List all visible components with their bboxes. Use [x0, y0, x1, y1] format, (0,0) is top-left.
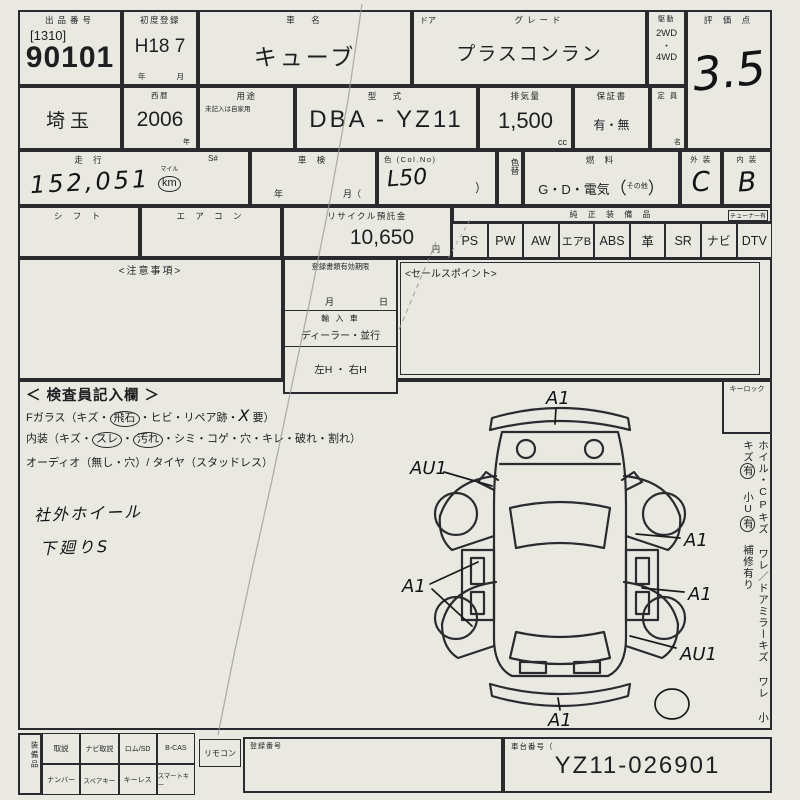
interior-grade-label: 内 装	[724, 152, 770, 165]
accessories-grid: 取説 ナビ取説 ロム/SD B-CAS ナンバー スペアキー キーレス スマート…	[42, 733, 195, 795]
drive-2wd: 2WD	[649, 28, 684, 39]
interior-pre: 内装（キズ・	[26, 433, 92, 445]
genuine-equipment-grid: PS PW AW エアB ABS 革 SR ナビ DTV	[452, 223, 772, 258]
accessory-number-plate: ナンバー	[42, 764, 80, 795]
mileage-unit: マイル km	[158, 164, 181, 192]
color-change-label: 色替	[510, 158, 520, 175]
western-year-cell: 西暦 2006 年	[122, 86, 198, 150]
recycle-deposit-value: 10,650	[284, 226, 450, 250]
interior-grade-cell: 内 装 B	[722, 150, 772, 206]
shaken-cell: 車 検 年 月（	[250, 150, 377, 206]
inspector-note-aftermarket-wheels: 社外ホイール	[34, 498, 143, 526]
annotation-right-front-door: A1	[683, 530, 708, 551]
sidebar-mirror-text: ドアミラーキズ ワレ	[757, 583, 769, 700]
sales-point-label: <セールスポイント>	[401, 263, 759, 280]
door-slot-right-front	[636, 558, 649, 584]
displacement-value: 1,500	[480, 108, 571, 134]
usage-cell: 用途 未記入は自家用	[198, 86, 295, 150]
registration-docs-box: 登録書類有効期限 月 日 輸 入 車 ディーラー・並行 左H ・ 右H	[283, 258, 398, 394]
docs-month-day-row: 月 日	[285, 272, 396, 311]
front-glass-post: 要）	[253, 412, 275, 424]
capacity-label: 定 員	[652, 88, 684, 101]
grade-value: プラスコンラン	[414, 39, 645, 66]
first-registration-label: 初度登録	[124, 12, 196, 26]
sidebar-repair-note: 補修有り	[742, 545, 754, 591]
car-name-label: 車 名	[200, 12, 410, 26]
annotation-right-rear-door: A1	[687, 584, 712, 605]
recycle-deposit-label: リサイクル預託金	[284, 208, 450, 222]
sidebar-small-dent-label: 小U	[742, 492, 754, 517]
warranty-label: 保証書	[575, 88, 648, 102]
keylock-label: キーロック	[724, 382, 770, 394]
docs-month-label: 月	[325, 295, 334, 308]
fuel-value-line: G・D・電気（その他）	[525, 174, 678, 199]
accessory-rom-sd: ロム/SD	[119, 733, 157, 764]
rear-bumper	[490, 684, 630, 706]
equipment-item-airbag: エアB	[559, 223, 595, 258]
shaken-year-label: 年	[274, 187, 283, 200]
recycle-deposit-cell: リサイクル預託金 10,650 円	[282, 206, 452, 258]
door-slot-right-rear	[636, 592, 649, 614]
annotation-left-doors: A1	[401, 576, 426, 597]
chassis-number-value: YZ11-026901	[505, 752, 770, 780]
sidebar-small-dent-mark: 有	[740, 516, 755, 532]
first-registration-unit-year: 年	[138, 71, 146, 82]
door-label: ドア	[420, 15, 436, 26]
color-label: 色 (Col.No)	[379, 152, 495, 165]
grade-label: グレード	[414, 12, 645, 26]
registration-docs-label: 登録書類有効期限	[285, 260, 396, 272]
equipment-item-dtv: DTV	[737, 223, 773, 258]
western-year-value: 2006	[124, 108, 196, 132]
headlight-right	[585, 440, 603, 458]
model-code-label: 型 式	[297, 88, 476, 102]
exterior-grade-cell: 外 装 C	[680, 150, 722, 206]
accessory-spare-key: スペアキー	[80, 764, 118, 795]
sidebar-wheel-cp-text: ホイル・CPキズ ワレ	[757, 440, 769, 571]
remote-label: リモコン	[204, 748, 236, 759]
recycle-deposit-unit: 円	[432, 244, 440, 255]
capacity-cell: 定 員 名	[650, 86, 686, 150]
registration-number-label: 登録番号	[245, 739, 501, 751]
accessories-row-1: 取説 ナビ取説 ロム/SD B-CAS	[42, 733, 195, 764]
sales-point-box: <セールスポイント>	[400, 262, 760, 375]
mile-unit-label: マイル	[158, 164, 181, 173]
shift-label: シ フ ト	[20, 208, 138, 222]
chassis-number-box: 車台番号（ YZ11-026901	[503, 737, 772, 793]
accessories-label: 装備品	[30, 741, 39, 770]
color-cell: 色 (Col.No) L50 ）	[377, 150, 497, 206]
windshield	[510, 502, 610, 548]
door-slot-left-rear	[471, 592, 484, 614]
auction-sheet-scan: { "palette": {"paper":"#e9e9e2","ink":"#…	[0, 0, 800, 800]
grade-cell: ドア グレード プラスコンラン	[412, 10, 647, 86]
docs-day-label: 日	[379, 295, 388, 308]
western-year-unit: 年	[183, 137, 190, 147]
equipment-item-pw: PW	[488, 223, 524, 258]
handwritten-circle-mark	[655, 689, 689, 719]
aircon-cell: エ ア コ ン	[140, 206, 282, 258]
western-year-label: 西暦	[124, 88, 196, 101]
displacement-unit: cc	[558, 137, 567, 147]
car-damage-diagram: A1 AU1 A1 A1 A1 AU1 A1	[398, 386, 722, 730]
usage-label: 用途	[200, 88, 293, 102]
leader-front	[555, 408, 556, 424]
accessory-bcas: B-CAS	[157, 733, 195, 764]
equipment-item-navi: ナビ	[701, 223, 737, 258]
first-registration-unit-month: 月	[177, 71, 185, 82]
mileage-value: 152,051	[29, 165, 151, 199]
fuel-value: G・D・電気	[538, 182, 610, 197]
interior-sep: ・	[122, 433, 133, 445]
model-code-cell: 型 式 DBA - YZ11	[295, 86, 478, 150]
tuner-note: チューナー有	[728, 210, 768, 221]
genuine-equipment-label: 純 正 装 備 品	[454, 208, 770, 220]
shift-cell: シ フ ト	[18, 206, 140, 258]
audio-tire-line: オーディオ（無し・穴）/ タイヤ（スタッドレス）	[26, 454, 273, 470]
mileage-cell: 走 行 S# 152,051 マイル km	[18, 150, 250, 206]
exterior-grade-value: C	[681, 165, 722, 199]
color-paren-close: ）	[475, 179, 487, 196]
handle-value: 左H ・ 右H	[285, 347, 396, 392]
accessory-navi-manual: ナビ取説	[80, 733, 118, 764]
remote-cell: リモコン	[199, 739, 241, 767]
chassis-number-label: 車台番号（	[505, 739, 770, 752]
lot-number-cell: 出品番号 [1310] 90101	[18, 10, 122, 86]
leader-rear	[558, 698, 560, 710]
first-registration-value: H18 7	[124, 36, 196, 58]
annotation-left-fender: AU1	[409, 458, 447, 479]
usage-note: 未記入は自家用	[200, 103, 293, 113]
color-change-cell: 色替	[497, 150, 523, 206]
region-cell: 埼玉	[18, 86, 122, 150]
equipment-item-ps: PS	[452, 223, 488, 258]
front-glass-mid: ・ヒビ・リペア跡・	[140, 412, 239, 424]
inspector-note-underbody: 下廻りS	[40, 533, 111, 559]
front-glass-circled-flying-stone: 飛石	[110, 411, 140, 427]
front-glass-line: Fガラス（キズ・飛石・ヒビ・リペア跡・X 要）	[26, 406, 275, 427]
drive-cell: 駆動 2WD ・ 4WD	[647, 10, 686, 86]
region-value: 埼玉	[20, 106, 120, 133]
car-name-value: キューブ	[200, 38, 410, 72]
displacement-label: 排気量	[480, 88, 571, 102]
sheet: 出品番号 [1310] 90101 初度登録 H18 7 年 月 車 名 キュー…	[0, 0, 800, 800]
front-bumper	[490, 408, 630, 430]
accessory-manual: 取説	[42, 733, 80, 764]
interior-condition-line: 内装（キズ・スレ・汚れ・シミ・コゲ・穴・キレ・破れ・割れ）	[26, 430, 361, 448]
sidebar-small-scratch-mark: 有	[740, 463, 755, 479]
first-registration-cell: 初度登録 H18 7 年 月	[122, 10, 198, 86]
accessories-label-cell: 装備品	[18, 733, 42, 795]
headlight-left	[517, 440, 535, 458]
genuine-equipment-header: 純 正 装 備 品 チューナー有	[452, 206, 772, 223]
warranty-cell: 保証書 有・無	[573, 86, 650, 150]
aircon-label: エ ア コ ン	[142, 208, 280, 222]
accessory-keyless: キーレス	[119, 764, 157, 795]
shaken-label: 車 検	[252, 152, 375, 166]
capacity-unit: 名	[674, 137, 681, 147]
warranty-value: 有・無	[575, 116, 648, 133]
sidebar-damage-notes: ホイル・CPキズ ワレ／ドアミラーキズ ワレ 小キズ有 小U有 補修有り	[722, 440, 770, 728]
interior-post: ・シミ・コゲ・穴・キレ・破れ・割れ）	[163, 433, 361, 445]
front-glass-pre: Fガラス（キズ・	[26, 412, 110, 424]
rear-window	[510, 632, 610, 664]
keylock-box: キーロック	[722, 380, 772, 434]
inspector-title: ＜ 検査員記入欄 ＞	[26, 384, 160, 405]
equipment-item-sr: SR	[665, 223, 701, 258]
equipment-item-leather: 革	[630, 223, 666, 258]
score-cell: 評 価 点 3.5	[686, 10, 772, 150]
fuel-other-label: その他	[627, 183, 648, 190]
annotation-right-rear-fender: AU1	[679, 644, 717, 665]
front-glass-x-mark: X	[239, 406, 250, 425]
lot-number-label: 出品番号	[20, 12, 120, 26]
interior-grade-value: B	[723, 166, 771, 199]
accessory-smart-key: スマートキー	[157, 764, 195, 795]
car-name-cell: 車 名 キューブ	[198, 10, 412, 86]
equipment-item-aw: AW	[523, 223, 559, 258]
model-code-value: DBA - YZ11	[297, 106, 476, 134]
score-label: 評 価 点	[688, 12, 770, 26]
annotation-rear: A1	[547, 710, 572, 730]
interior-circled-scuff: スレ	[92, 432, 122, 448]
color-value: L50	[386, 165, 428, 193]
caution-box: <注意事項>	[18, 258, 283, 380]
fuel-cell: 燃 料 G・D・電気（その他）	[523, 150, 680, 206]
annotation-front: A1	[545, 388, 570, 409]
exterior-grade-label: 外 装	[682, 152, 720, 165]
displacement-cell: 排気量 1,500 cc	[478, 86, 573, 150]
equipment-item-abs: ABS	[594, 223, 630, 258]
drive-label: 駆動	[649, 12, 684, 24]
accessories-row-2: ナンバー スペアキー キーレス スマートキー	[42, 764, 195, 795]
mileage-s-label: S#	[208, 154, 218, 163]
fuel-paren-close: ）	[648, 179, 665, 198]
lot-number-value: 90101	[20, 41, 120, 75]
import-value: ディーラー・並行	[285, 324, 396, 347]
km-unit-circled: km	[158, 176, 181, 192]
interior-circled-dirt: 汚れ	[133, 432, 163, 448]
mileage-label: 走 行	[20, 152, 160, 166]
score-value: 3.5	[685, 40, 772, 102]
drive-separator: ・	[649, 39, 684, 52]
fuel-paren-open: （	[610, 179, 627, 198]
sidebar-slash: ／	[757, 571, 769, 583]
caution-label: <注意事項>	[20, 260, 281, 277]
fuel-label: 燃 料	[525, 152, 678, 166]
drive-4wd: 4WD	[649, 52, 684, 63]
import-label: 輸 入 車	[285, 311, 396, 324]
shaken-month-label: 月（	[343, 187, 361, 200]
registration-number-box: 登録番号	[243, 737, 503, 793]
